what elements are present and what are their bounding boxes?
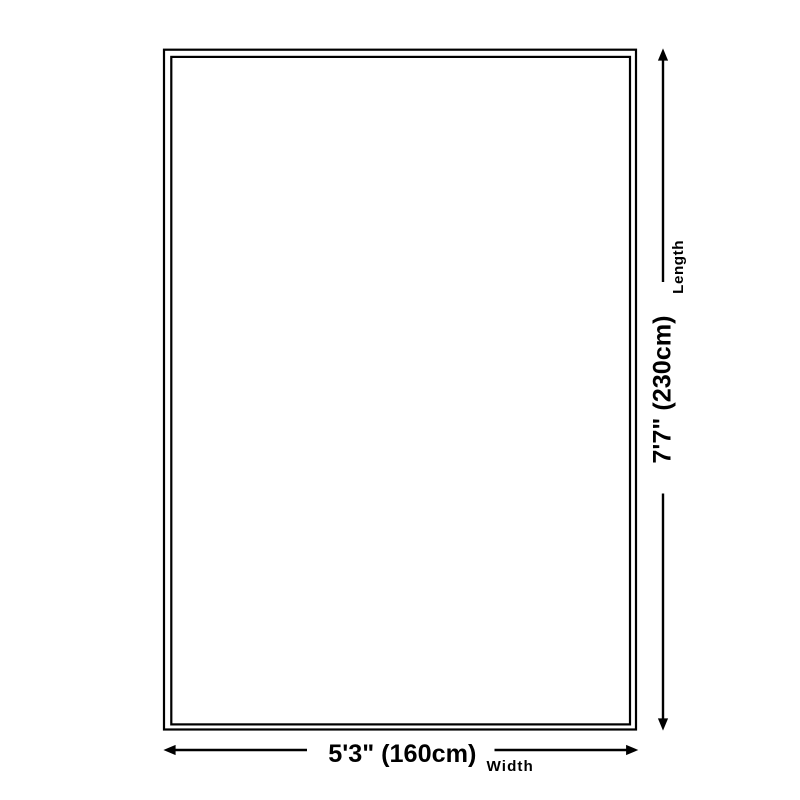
svg-text:7'7" (230cm): 7'7" (230cm) xyxy=(648,315,676,463)
svg-text:Width: Width xyxy=(487,758,534,775)
svg-text:Length: Length xyxy=(670,240,687,294)
svg-text:5'3" (160cm): 5'3" (160cm) xyxy=(328,740,476,768)
